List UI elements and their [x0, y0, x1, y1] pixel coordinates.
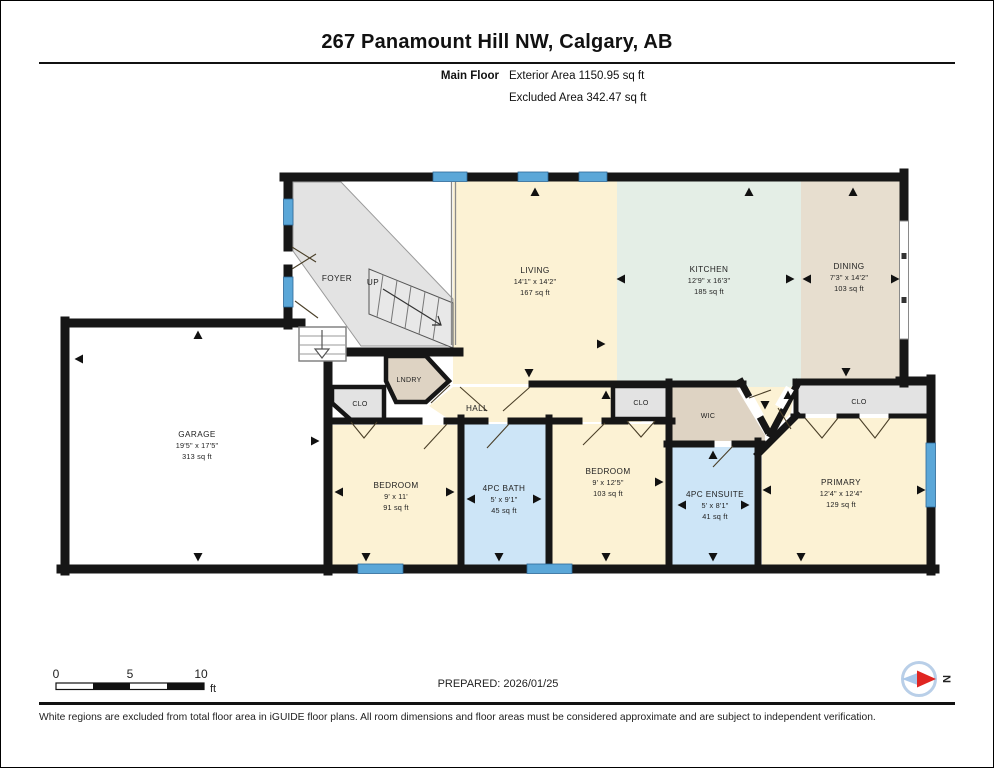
room-label: KITCHEN — [690, 265, 729, 274]
room-area: 313 sq ft — [182, 452, 212, 461]
prepared-date: PREPARED: 2026/01/25 — [1, 678, 994, 690]
room-dims: 7'3" x 14'2" — [830, 273, 869, 282]
room-dims: 19'5" x 17'5" — [176, 441, 219, 450]
room-label: UP — [367, 278, 379, 287]
floor-plan-drawing: LIVING 14'1" x 14'2" 167 sq ft KITCHEN 1… — [1, 1, 994, 768]
window — [284, 199, 294, 225]
window — [579, 172, 607, 182]
room-area: 103 sq ft — [593, 489, 623, 498]
room-label: DINING — [833, 262, 864, 271]
room-dims: 14'1" x 14'2" — [514, 277, 557, 286]
window — [926, 443, 936, 507]
window — [433, 172, 467, 182]
room-label: CLO — [352, 401, 368, 408]
room-label: LIVING — [520, 266, 549, 275]
room-dims: 5' x 8'1" — [701, 501, 728, 510]
room-area: 91 sq ft — [383, 503, 409, 512]
disclaimer-text: White regions are excluded from total fl… — [39, 712, 973, 723]
room-area: 45 sq ft — [491, 506, 517, 515]
window — [527, 564, 572, 574]
room-label: HALL — [466, 404, 488, 413]
room-label: FOYER — [322, 274, 352, 283]
room-dims: 5' x 9'1" — [490, 495, 517, 504]
room-label: 4PC ENSUITE — [686, 490, 744, 499]
footer-divider — [39, 702, 955, 705]
room-area: 185 sq ft — [694, 287, 724, 296]
window — [358, 564, 403, 574]
room-dims: 12'4" x 12'4" — [820, 489, 863, 498]
room-label: BEDROOM — [585, 467, 630, 476]
floor-plan-page: 267 Panamount Hill NW, Calgary, AB Main … — [0, 0, 994, 768]
room-area: 41 sq ft — [702, 512, 728, 521]
window — [518, 172, 548, 182]
stairs-down — [299, 327, 346, 361]
room-area: 103 sq ft — [834, 284, 864, 293]
room-label: PRIMARY — [821, 478, 861, 487]
room-label: 4PC BATH — [483, 484, 526, 493]
room-label: GARAGE — [178, 430, 216, 439]
room-area: 167 sq ft — [520, 288, 550, 297]
room-dims: 9' x 12'5" — [592, 478, 624, 487]
room-dims: 12'9" x 16'3" — [688, 276, 731, 285]
room-label: WIC — [701, 413, 716, 420]
patio-window — [900, 221, 909, 339]
bedroom2-nook — [552, 391, 610, 421]
room-label: CLO — [633, 400, 649, 407]
room-area: 129 sq ft — [826, 500, 856, 509]
window — [284, 277, 294, 307]
room-label: LNDRY — [396, 377, 421, 384]
room-label: CLO — [851, 399, 867, 406]
room-dims: 9' x 11' — [384, 492, 408, 501]
room-label: BEDROOM — [373, 481, 418, 490]
